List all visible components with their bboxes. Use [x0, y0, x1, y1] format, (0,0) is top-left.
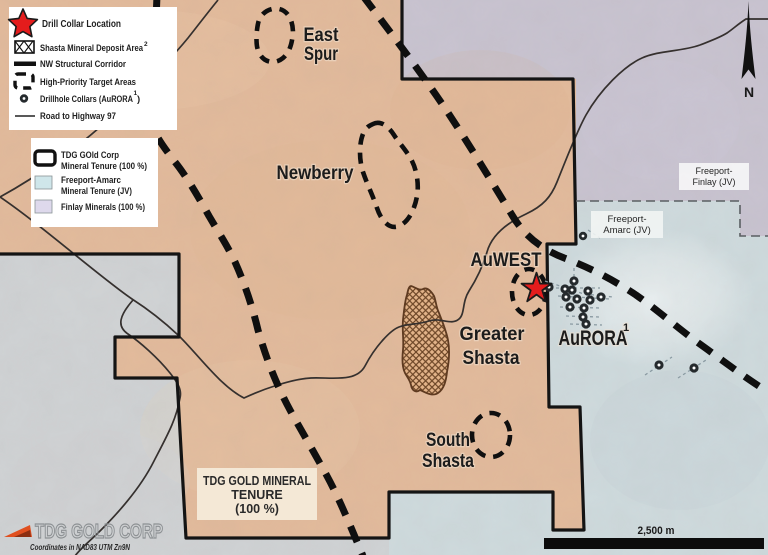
svg-text:Drill Collar Location: Drill Collar Location [42, 19, 121, 30]
svg-text:Shasta Mineral Deposit Area: Shasta Mineral Deposit Area [40, 43, 144, 54]
svg-text:Freeport-: Freeport- [607, 214, 646, 225]
svg-text:1: 1 [623, 322, 629, 334]
svg-text:Newberry: Newberry [277, 162, 354, 184]
svg-text:Shasta: Shasta [463, 347, 520, 369]
svg-text:Freeport-Amarc: Freeport-Amarc [61, 175, 121, 186]
svg-text:Finlay (JV): Finlay (JV) [692, 177, 735, 187]
svg-text:N: N [744, 84, 754, 100]
svg-text:High-Priority Target Areas: High-Priority Target Areas [40, 77, 136, 88]
svg-text:NW Structural Corridor: NW Structural Corridor [40, 59, 126, 70]
svg-text:TENURE: TENURE [231, 488, 282, 502]
svg-text:TDG GOLD CORP: TDG GOLD CORP [35, 521, 163, 543]
svg-text:Road to Highway 97: Road to Highway 97 [40, 111, 116, 122]
svg-text:Spur: Spur [304, 44, 338, 65]
svg-text:Drillhole Collars (AuRORA: Drillhole Collars (AuRORA [40, 94, 133, 105]
svg-text:AuRORA: AuRORA [559, 327, 628, 350]
svg-text:Mineral Tenure (JV): Mineral Tenure (JV) [61, 186, 132, 197]
svg-text:TDG GOLD MINERAL: TDG GOLD MINERAL [203, 474, 311, 488]
svg-text:AuWEST: AuWEST [471, 250, 542, 271]
svg-text:): ) [137, 94, 140, 105]
svg-text:Freeport-: Freeport- [695, 166, 732, 176]
svg-text:2,500 m: 2,500 m [638, 525, 675, 537]
svg-text:Shasta: Shasta [422, 451, 474, 472]
svg-text:Amarc (JV): Amarc (JV) [603, 225, 651, 236]
svg-text:(100 %): (100 %) [235, 502, 279, 516]
svg-text:South: South [426, 430, 470, 451]
svg-text:TDG GOld Corp: TDG GOld Corp [61, 150, 119, 161]
svg-text:2: 2 [144, 41, 148, 48]
svg-text:Mineral Tenure (100 %): Mineral Tenure (100 %) [61, 161, 147, 172]
svg-text:Finlay Minerals (100 %): Finlay Minerals (100 %) [61, 202, 145, 213]
svg-text:Coordinates in NAD83 UTM Zn9N: Coordinates in NAD83 UTM Zn9N [30, 543, 130, 552]
svg-text:Greater: Greater [460, 323, 525, 345]
svg-text:East: East [304, 25, 340, 46]
